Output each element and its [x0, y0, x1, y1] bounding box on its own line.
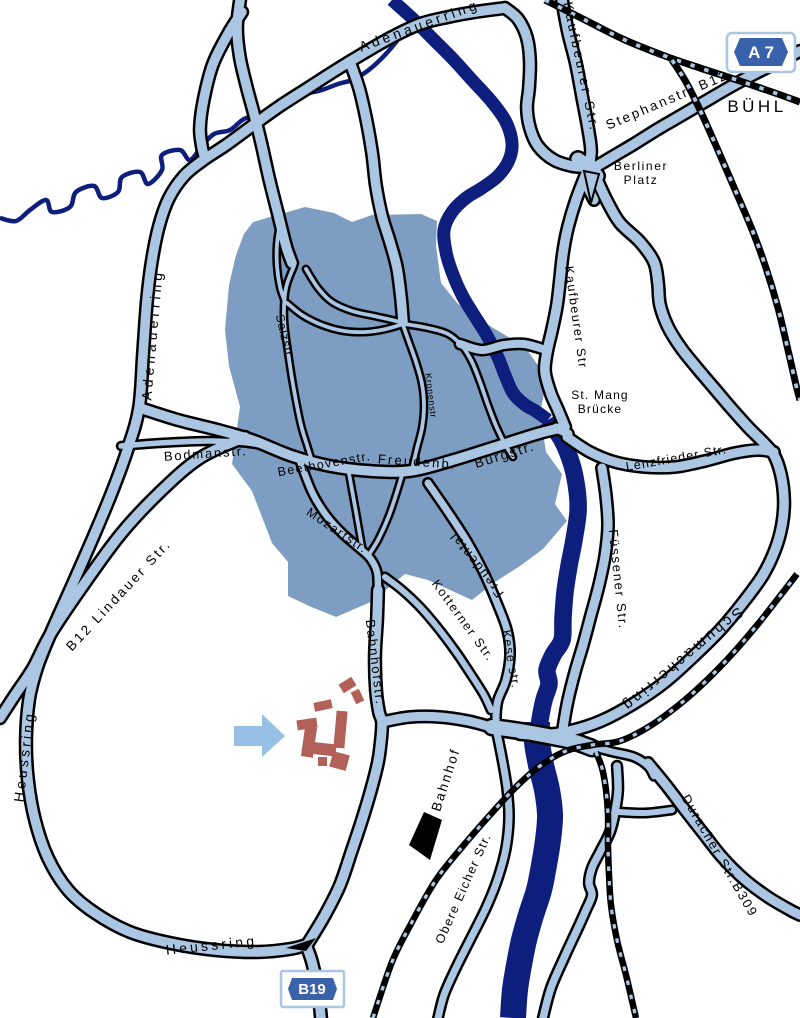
svg-text:BÜHL: BÜHL	[727, 97, 786, 116]
svg-text:A 7: A 7	[748, 43, 774, 62]
svg-text:Platz: Platz	[624, 173, 659, 187]
svg-text:Berliner: Berliner	[614, 159, 668, 173]
svg-text:B19: B19	[298, 981, 326, 998]
svg-text:Brücke: Brücke	[578, 402, 623, 416]
svg-text:St. Mang: St. Mang	[571, 388, 629, 402]
